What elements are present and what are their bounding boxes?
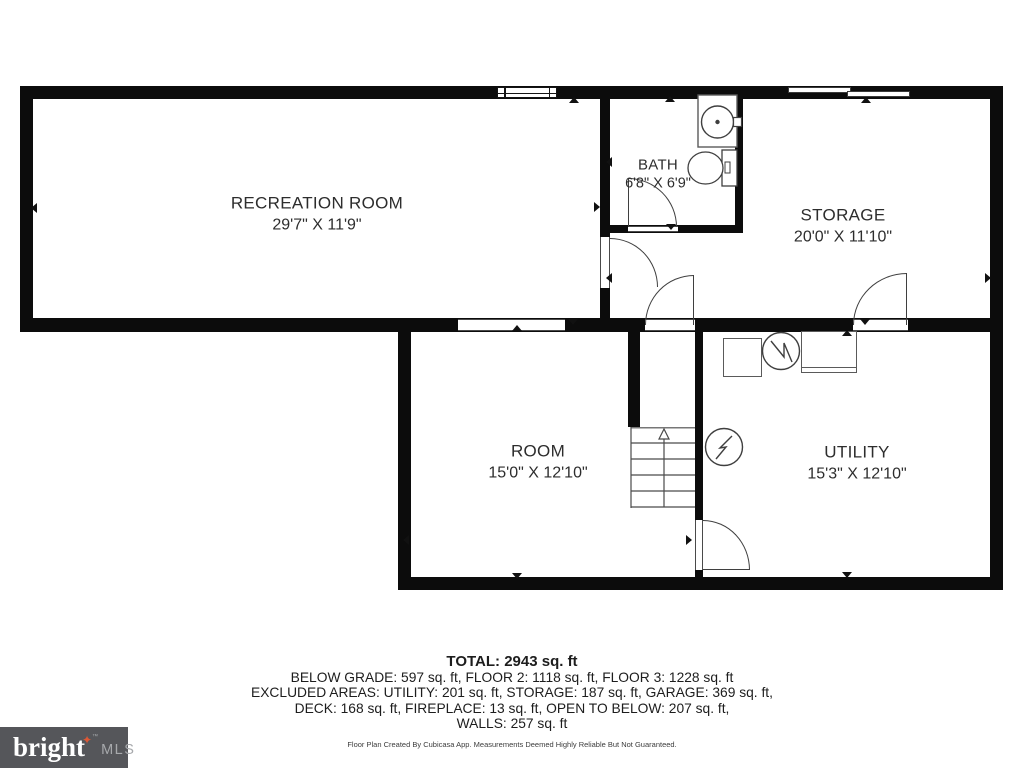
room-dimensions: 15'3" X 12'10" (807, 466, 906, 484)
measure-arrow (569, 97, 579, 103)
measure-arrow (861, 97, 871, 103)
staircase (630, 427, 695, 508)
trademark-symbol: ™ (92, 734, 98, 740)
window-center-line (498, 93, 556, 94)
water-heater-icon (761, 331, 801, 371)
window-storage-right (847, 91, 910, 97)
measure-arrow (403, 535, 409, 545)
measure-arrow (606, 157, 612, 167)
bright-mls-logo: bright✦™MLS (0, 727, 128, 768)
room-dimensions: 15'0" X 12'10" (488, 465, 587, 483)
measure-arrow (665, 96, 675, 102)
measure-arrow (606, 273, 612, 283)
measure-arrow (842, 572, 852, 578)
wall-left-lower (398, 318, 411, 590)
measure-arrow (512, 573, 522, 579)
measure-arrow (568, 319, 578, 325)
measure-arrow (860, 319, 870, 325)
excluded-areas-text: EXCLUDED AREAS: UTILITY: 201 sq. ft, STO… (0, 685, 1024, 700)
logo-suffix: MLS (101, 742, 135, 758)
wall-utility-left-lower (695, 570, 703, 579)
wall-utility-left-upper (695, 332, 703, 520)
floor-plan-page: RECREATION ROOM 29'7" X 11'9" BATH 6'8" … (0, 0, 1024, 768)
door-arc-recreation-storage (610, 238, 658, 287)
hvac-unit-icon (723, 338, 762, 377)
window-storage-left (788, 87, 851, 93)
appliance-icon (801, 331, 857, 373)
star-icon: ✦ (82, 735, 92, 745)
room-name: STORAGE (794, 206, 892, 226)
room-name: RECREATION ROOM (231, 194, 403, 214)
total-area-text: TOTAL: 2943 sq. ft (0, 654, 1024, 670)
room-name: UTILITY (807, 443, 906, 463)
room-label-recreation: RECREATION ROOM 29'7" X 11'9" (231, 194, 403, 235)
room-dimensions: 6'8" X 6'9" (625, 176, 691, 192)
door-arc-utility (703, 520, 750, 570)
floors-area-text: BELOW GRADE: 597 sq. ft, FLOOR 2: 1118 s… (0, 670, 1024, 685)
measure-arrow (31, 203, 37, 213)
area-summary: TOTAL: 2943 sq. ft BELOW GRADE: 597 sq. … (0, 654, 1024, 749)
door-arc-storage-right (853, 273, 907, 325)
wall-right (990, 86, 1003, 590)
sink-icon (697, 94, 743, 148)
excluded-areas-text-2: DECK: 168 sq. ft, FIREPLACE: 13 sq. ft, … (0, 701, 1024, 716)
measure-arrow (666, 224, 676, 230)
room-label-storage: STORAGE 20'0" X 11'10" (794, 206, 892, 247)
wall-stair-side (628, 332, 640, 427)
furnace-icon (704, 427, 744, 467)
walls-area-text: WALLS: 257 sq. ft (0, 716, 1024, 731)
window-recreation (497, 87, 557, 98)
room-label-bath: BATH 6'8" X 6'9" (625, 157, 691, 192)
wall-bath-left-lower (600, 288, 610, 320)
room-name: BATH (625, 157, 691, 174)
measure-arrow (594, 202, 600, 212)
room-label-utility: UTILITY 15'3" X 12'10" (807, 443, 906, 484)
measure-arrow (842, 330, 852, 336)
door-opening-utility (695, 520, 703, 570)
measure-arrow (512, 325, 522, 331)
room-label-room: ROOM 15'0" X 12'10" (488, 442, 587, 483)
logo-wordmark: bright (13, 734, 85, 761)
room-dimensions: 29'7" X 11'9" (231, 217, 403, 235)
measure-arrow (686, 535, 692, 545)
disclaimer-text: Floor Plan Created By Cubicasa App. Meas… (0, 740, 1024, 749)
toilet-icon (686, 149, 739, 189)
room-name: ROOM (488, 442, 587, 462)
room-dimensions: 20'0" X 11'10" (794, 229, 892, 247)
measure-arrow (985, 273, 991, 283)
